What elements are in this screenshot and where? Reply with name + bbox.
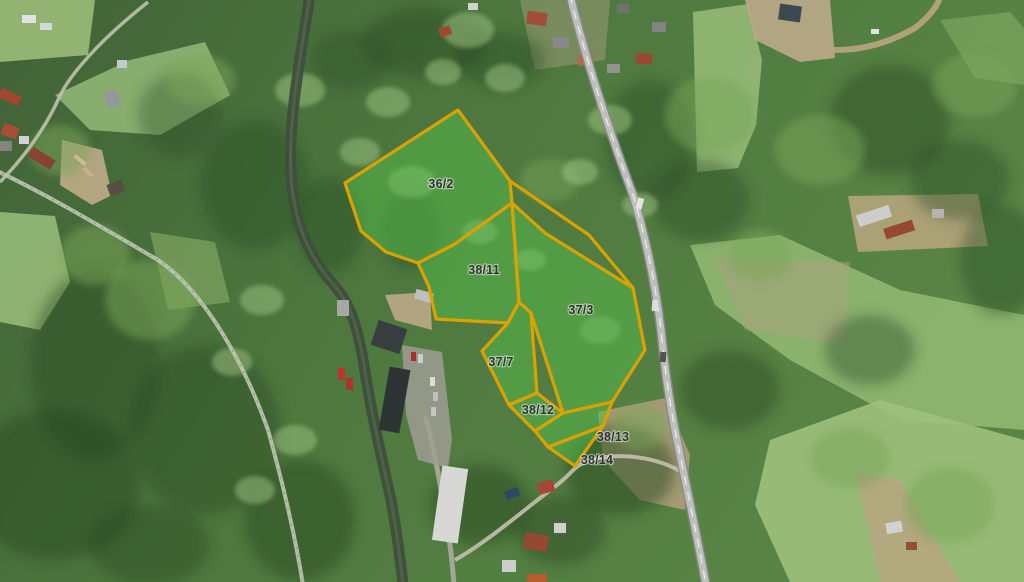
aerial-basemap: 36/2 38/11 37/3 37/7 38/12 38/13 38/14 [0,0,1024,582]
map-viewport[interactable]: 36/2 38/11 37/3 37/7 38/12 38/13 38/14 [0,0,1024,582]
vignette [0,0,1024,582]
